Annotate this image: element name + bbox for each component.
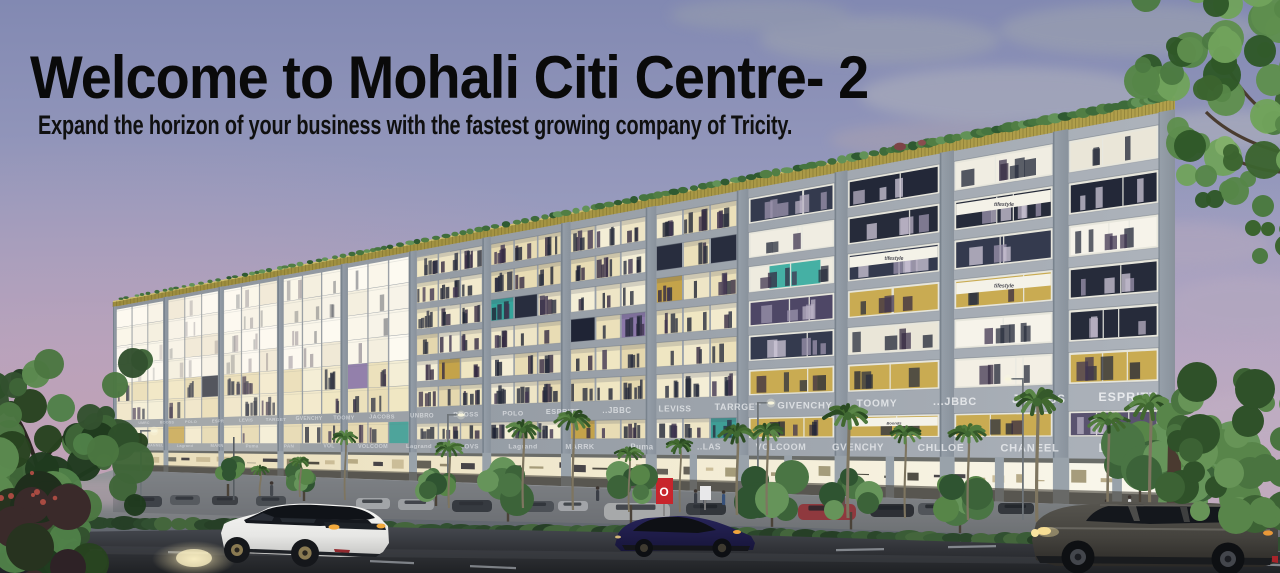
svg-text:LEVIS: LEVIS bbox=[239, 418, 253, 423]
svg-text:UNBRO: UNBRO bbox=[410, 414, 434, 420]
svg-text:Lagrand: Lagrand bbox=[177, 444, 194, 448]
svg-text:CHANEEL: CHANEEL bbox=[1000, 443, 1059, 455]
svg-text:GIVENCHY: GIVENCHY bbox=[777, 400, 832, 411]
svg-text:POLO: POLO bbox=[185, 419, 197, 424]
svg-text:Puma: Puma bbox=[246, 443, 259, 448]
svg-text:..JBBC: ..JBBC bbox=[602, 406, 631, 415]
svg-text:MARN: MARN bbox=[210, 443, 223, 448]
svg-text:Boonds: Boonds bbox=[887, 420, 903, 425]
svg-text:TARRGET: TARRGET bbox=[715, 402, 762, 412]
svg-text:UMRC: UMRC bbox=[138, 421, 150, 425]
svg-text:TOOMY: TOOMY bbox=[333, 415, 354, 421]
svg-text:...JBBC: ...JBBC bbox=[933, 396, 977, 408]
svg-text:O: O bbox=[659, 485, 668, 499]
svg-text:tifestyle: tifestyle bbox=[885, 256, 904, 262]
svg-text:VOLCOOM: VOLCOOM bbox=[358, 444, 388, 450]
svg-text:VOLCOOM: VOLCOOM bbox=[756, 442, 807, 452]
svg-text:TARGET: TARGET bbox=[266, 417, 287, 422]
svg-text:LEVISS: LEVISS bbox=[658, 404, 691, 414]
svg-text:Lagrand: Lagrand bbox=[406, 444, 432, 450]
svg-text:VOL: VOL bbox=[323, 444, 334, 450]
svg-text:CHLLOE: CHLLOE bbox=[918, 443, 965, 454]
svg-text:MARRK: MARRK bbox=[565, 442, 595, 451]
svg-text:BOOSS: BOOSS bbox=[160, 421, 175, 425]
svg-text:POLO: POLO bbox=[502, 410, 523, 417]
svg-text:..LAS: ..LAS bbox=[697, 442, 721, 452]
svg-text:ESPR: ESPR bbox=[212, 418, 224, 423]
svg-text:JACOBS: JACOBS bbox=[369, 415, 395, 421]
svg-text:tifestyle: tifestyle bbox=[994, 284, 1014, 290]
svg-text:GVENCHY: GVENCHY bbox=[296, 416, 323, 422]
svg-text:PAN: PAN bbox=[284, 444, 295, 449]
svg-text:GVENCHY: GVENCHY bbox=[832, 443, 884, 454]
svg-text:tifestyle: tifestyle bbox=[994, 202, 1014, 208]
